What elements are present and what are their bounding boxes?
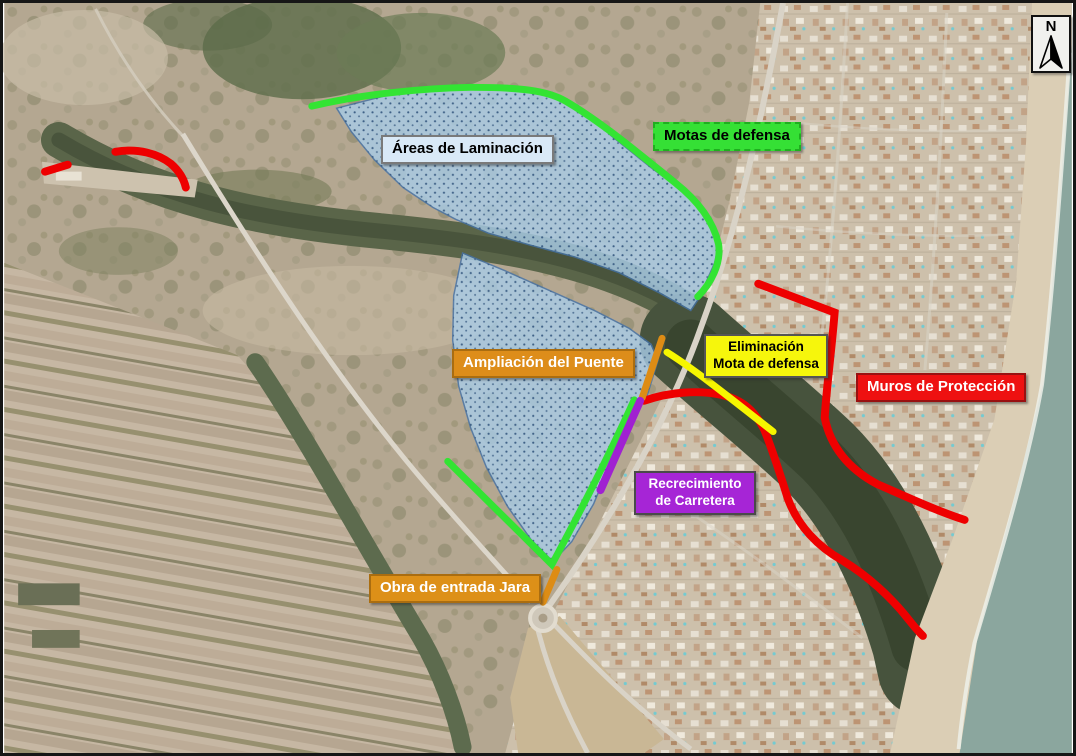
label-areas-laminacion: Áreas de Laminación [381,135,554,164]
hill-vegetation-patch [337,13,506,92]
slope-vegetation-patch [59,227,178,275]
north-letter: N [1046,18,1057,35]
label-recrecimiento: Recrecimiento de Carretera [634,471,756,515]
sand-patch [3,10,168,105]
label-recrecimiento-line2: de Carretera [655,493,735,508]
map-figure: Áreas de Laminación Motas de defensa Amp… [0,0,1076,756]
north-arrow-icon [1039,35,1063,71]
label-obra-jara: Obra de entrada Jara [369,574,541,603]
greenhouse-structure [18,583,80,605]
label-eliminacion-mota: Eliminación Mota de defensa [704,334,828,378]
label-muros-proteccion: Muros de Protección [856,373,1026,402]
label-ampliacion-puente-text: Ampliación del Puente [463,354,624,371]
label-obra-jara-text: Obra de entrada Jara [380,579,530,596]
label-areas-laminacion-text: Áreas de Laminación [392,140,543,157]
label-motas-defensa-text: Motas de defensa [664,127,790,144]
label-eliminacion-mota-line1: Eliminación [728,339,804,354]
greenhouse-structure [32,630,80,648]
label-eliminacion-mota-line2: Mota de defensa [713,356,819,371]
dam-building [56,172,82,181]
label-ampliacion-puente: Ampliación del Puente [452,349,635,378]
north-arrow: N [1031,15,1071,73]
roundabout-island [538,614,547,623]
label-motas-defensa: Motas de defensa [653,122,801,151]
label-muros-proteccion-text: Muros de Protección [867,378,1015,395]
label-recrecimiento-line1: Recrecimiento [648,476,741,491]
